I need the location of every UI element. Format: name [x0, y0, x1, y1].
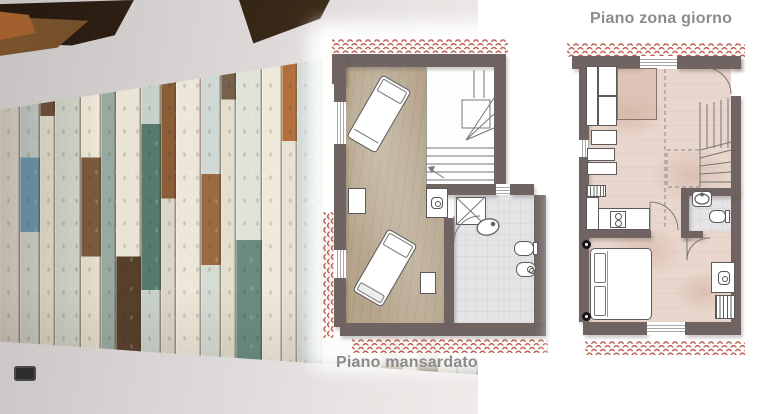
wood-plank [201, 0, 221, 414]
burner-icon [615, 220, 622, 227]
wall [494, 54, 506, 188]
bathroom-sink [692, 191, 712, 207]
plan-right-label: Piano zona giorno [590, 10, 732, 28]
sofa-cushion [598, 66, 617, 96]
basin-icon [718, 271, 730, 285]
wall [334, 144, 346, 250]
stair-room-floor [426, 67, 494, 184]
wood-plank [161, 0, 176, 414]
roof-tiles-border-top [332, 38, 508, 53]
wood-plank [176, 0, 201, 414]
wall [583, 322, 647, 335]
sofa-cushion [598, 96, 617, 126]
wall [510, 184, 534, 195]
wood-plank [236, 0, 261, 414]
toilet [514, 241, 534, 256]
roof-tiles-border-top [567, 42, 745, 57]
shelf-unit [587, 162, 617, 175]
window [647, 322, 685, 335]
wall [685, 322, 741, 335]
cabinet [348, 188, 366, 214]
wall [340, 54, 502, 67]
wall [534, 195, 546, 323]
wall [731, 96, 741, 188]
radiator [715, 295, 735, 319]
window [496, 184, 510, 195]
shelf-unit [587, 148, 615, 161]
laundry-cabinet [711, 262, 735, 293]
wall [681, 231, 703, 238]
bidet [516, 262, 536, 277]
wood-plank [297, 0, 322, 414]
window [334, 102, 346, 144]
bed-footline [354, 129, 379, 144]
basin-icon [431, 197, 443, 209]
wall [334, 278, 346, 327]
bed-pillow [594, 253, 606, 283]
toilet [709, 210, 726, 223]
toilet-tank [533, 242, 538, 255]
wood-plank [262, 0, 282, 414]
bidet-drain-icon [527, 266, 534, 273]
roof-tiles-border-left [322, 212, 334, 338]
double-bed [590, 248, 652, 320]
wood-plank [221, 0, 236, 414]
wall [731, 56, 741, 68]
bed-pillow [594, 286, 606, 316]
sofa-back [586, 66, 598, 126]
wall-lamp-dot [582, 312, 591, 321]
window [334, 250, 346, 278]
plan-left-label: Piano mansardato [336, 354, 478, 372]
washbasin-cabinet [426, 188, 448, 218]
floorplan-zona-giorno [565, 38, 760, 358]
wall-lamp-dot [582, 240, 591, 249]
floorplan-mansarda [322, 36, 562, 358]
power-outlet [14, 366, 36, 381]
wall [334, 54, 346, 102]
screenshot-root: Piano zona giorno Piano mansardato [0, 0, 760, 414]
wood-plank [282, 0, 297, 414]
shower [456, 197, 486, 225]
toilet-tank [725, 210, 730, 223]
nightstand [420, 272, 436, 294]
roof-tiles-border-bottom [585, 340, 745, 355]
ottoman [591, 130, 617, 145]
wall [340, 323, 546, 336]
roof-tiles-border-bottom [352, 338, 548, 354]
wall [444, 218, 454, 323]
burner-icon [615, 213, 622, 220]
wall [579, 230, 651, 238]
rug [617, 68, 657, 120]
kitchen-sink-drainer [586, 185, 606, 197]
blanket-fold-line [607, 251, 608, 317]
stove [610, 211, 626, 228]
